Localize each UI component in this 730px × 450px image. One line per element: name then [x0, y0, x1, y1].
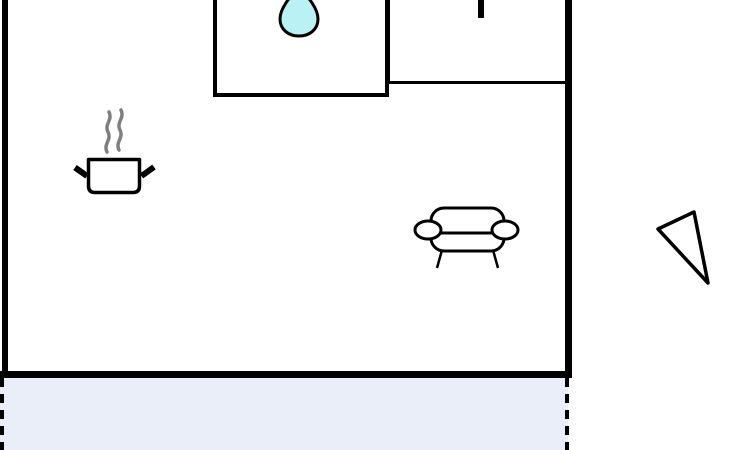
- fixture-mark: [478, 0, 484, 18]
- water-drop-icon: [276, 0, 322, 40]
- zone-dashed-border-right: [565, 378, 569, 450]
- side-counter: [386, 0, 565, 84]
- wall-right: [565, 0, 572, 378]
- wall-left: [2, 0, 8, 378]
- zone-dashed-border-left: [0, 378, 4, 450]
- wall-bottom: [0, 371, 572, 378]
- highlighted-floor-zone: [0, 378, 568, 450]
- sofa-icon: [410, 200, 530, 275]
- view-cone-icon: [645, 195, 725, 295]
- floorplan-canvas: [0, 0, 730, 450]
- steam-icon: [106, 110, 122, 152]
- cooking-pot-icon: [68, 105, 163, 200]
